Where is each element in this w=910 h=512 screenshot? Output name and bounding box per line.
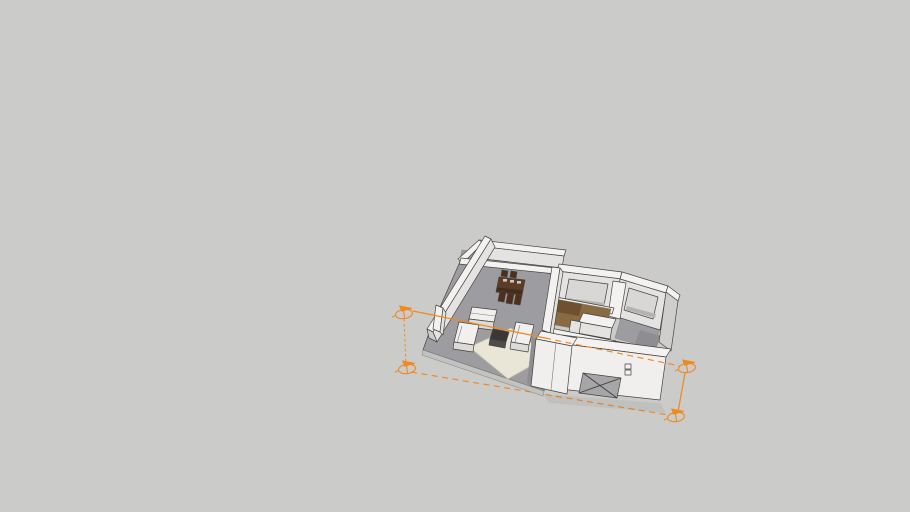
tableware [517, 281, 521, 284]
model-viewport[interactable] [0, 0, 910, 512]
dining-chair [501, 270, 508, 277]
viewport-canvas[interactable] [0, 0, 910, 512]
dining-chair [510, 271, 517, 278]
door-hardware [625, 364, 631, 369]
tableware [510, 280, 514, 283]
tableware [503, 279, 507, 282]
door-hardware [625, 370, 631, 375]
viewport-background [0, 0, 910, 512]
